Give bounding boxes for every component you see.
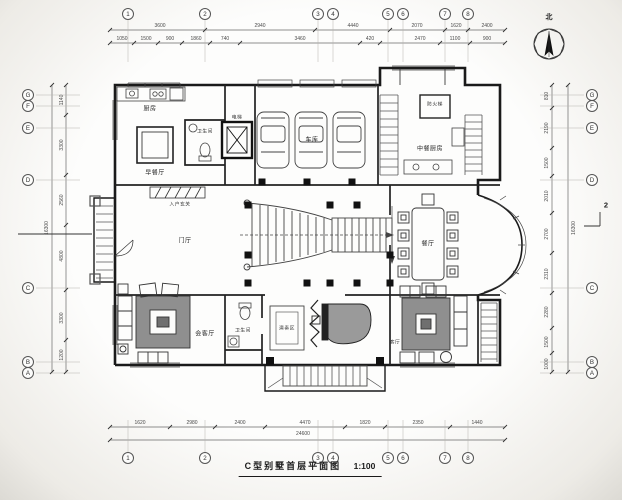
- car-icon: [295, 112, 327, 168]
- columns: [245, 179, 394, 366]
- kitchen-counter: [117, 87, 185, 101]
- stair-southeast: [481, 303, 497, 362]
- chinese-kitchen-counter: [404, 128, 464, 174]
- living-sofa-group: [400, 286, 467, 363]
- stair-kitchen-side: [465, 115, 482, 175]
- stair-garage-side: [380, 95, 398, 175]
- floor-plan-sheet: 厨房 早餐厅 卫生间 电梯 车库 中餐厨房 防火梯 入户玄关 门厅 餐厅 会客厅…: [0, 0, 622, 500]
- elevator-shaft: [222, 122, 252, 158]
- car-icon: [333, 112, 365, 168]
- dining-set: [398, 194, 458, 294]
- car-icon: [257, 112, 289, 168]
- plan-linework: [0, 0, 622, 500]
- grand-staircase: [240, 200, 395, 270]
- north-compass-icon: [534, 29, 564, 59]
- grand-piano: [310, 300, 371, 347]
- foyer-cabinet: [115, 187, 205, 256]
- stage-platform: [270, 306, 304, 350]
- garage-cars: [257, 112, 365, 168]
- bath2-fixtures: [228, 303, 251, 347]
- entry-porch-steps: [268, 366, 382, 388]
- bath1-fixtures: [189, 124, 211, 161]
- breakfast-table: [137, 127, 173, 163]
